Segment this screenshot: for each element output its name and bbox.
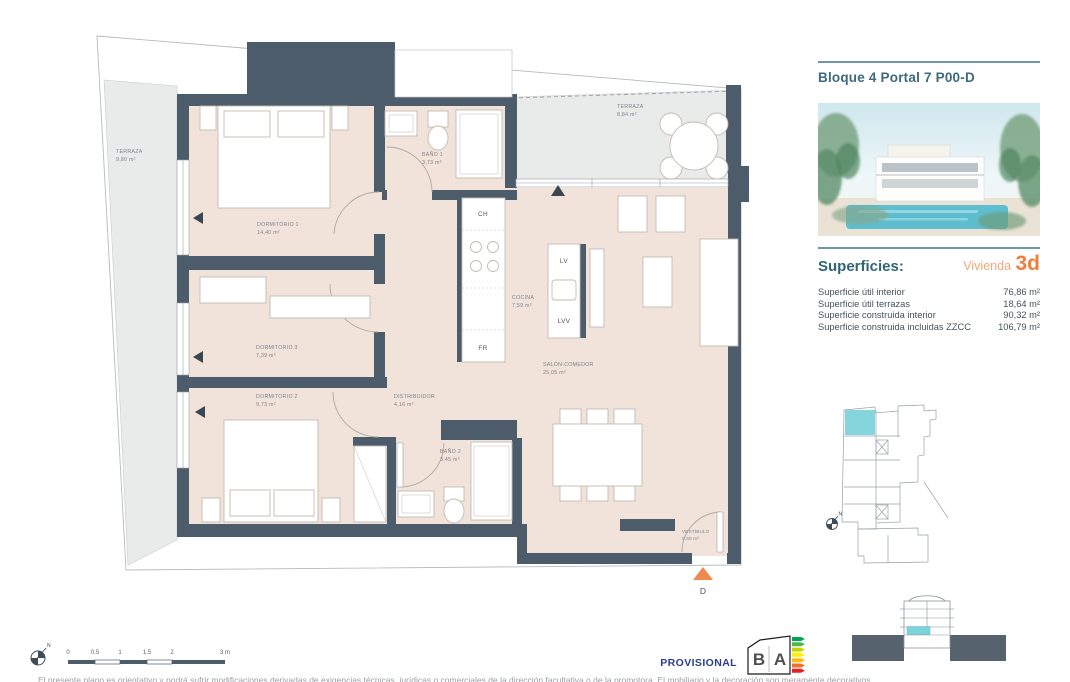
patio-shaft: [395, 50, 512, 97]
windows-west: [177, 160, 189, 468]
svg-text:9,73 m²: 9,73 m²: [256, 402, 276, 408]
svg-text:0.5: 0.5: [91, 650, 100, 656]
washer-label: LVV: [558, 318, 571, 325]
energy-rating-icon: B A: [746, 634, 808, 676]
room-distribuidor: DISTRIBUIDOR: [394, 394, 435, 400]
panel-divider-top: [818, 61, 1040, 63]
page-title: Bloque 4 Portal 7 P00-D: [818, 70, 1040, 85]
key-plan: N: [820, 392, 1025, 572]
svg-text:7,39 m²: 7,39 m²: [256, 353, 276, 359]
room-dormitorio2: DORMITORIO 2: [256, 394, 298, 400]
highlighted-floor: [907, 627, 930, 635]
svg-text:8,84 m²: 8,84 m²: [617, 112, 637, 118]
svg-text:25,05 m²: 25,05 m²: [543, 370, 566, 376]
compass-icon: N: [31, 643, 51, 665]
svg-text:B: B: [753, 650, 765, 669]
room-terraza-top: TERRAZA: [617, 104, 644, 110]
fridge-label: FR: [478, 345, 487, 352]
svg-text:A: A: [774, 650, 786, 669]
svg-text:1: 1: [118, 650, 122, 656]
svg-text:2: 2: [170, 650, 174, 656]
svg-text:3,45 m²: 3,45 m²: [440, 457, 460, 463]
room-cocina: COCINA: [512, 295, 534, 301]
svg-text:N: N: [839, 512, 843, 518]
room-bano2: BAÑO 2: [440, 448, 461, 455]
svg-text:1.5: 1.5: [143, 650, 152, 656]
terrace-sliding-window: [516, 179, 728, 187]
vivienda-label: Vivienda: [963, 259, 1011, 273]
vivienda-badge: Vivienda 3d: [963, 255, 1040, 275]
energy-scale-bars: [792, 637, 805, 673]
table-row: Superficie construida incluidas ZZCC 106…: [818, 322, 1040, 334]
room-terraza-left: TERRAZA: [116, 149, 143, 155]
svg-text:7,59 m²: 7,59 m²: [512, 303, 532, 309]
svg-text:N: N: [47, 643, 51, 649]
scale-bar: N 0 0.5 1 1.5 2 3 m: [20, 636, 260, 676]
room-salon: SALÓN-COMEDOR: [543, 361, 594, 368]
vivienda-value: 3d: [1015, 252, 1040, 275]
dishwasher-label: LV: [560, 258, 568, 265]
svg-text:14,40 m²: 14,40 m²: [257, 230, 280, 236]
scale-bar-segments: [68, 660, 225, 664]
building-render: [818, 103, 1040, 236]
building-section: [852, 593, 1032, 671]
room-dormitorio1: DORMITORIO 1: [257, 222, 299, 228]
highlighted-unit: [845, 410, 875, 435]
room-dormitorio3: DORMITORIO 3: [256, 345, 298, 351]
superficies-heading: Superficies:: [818, 258, 904, 275]
svg-text:9,80 m²: 9,80 m²: [116, 157, 136, 163]
table-row: Superficie construida interior 90,32 m²: [818, 310, 1040, 322]
svg-text:0,80 m²: 0,80 m²: [682, 536, 699, 541]
hood-label: CH: [478, 211, 488, 218]
room-bano1: BAÑO 1: [422, 151, 443, 158]
svg-text:0: 0: [66, 650, 70, 656]
table-row: Superficie útil terrazas 18,64 m²: [818, 299, 1040, 311]
panel-divider-mid: [818, 247, 1040, 249]
floor-plan: CH FR LV LVV D TERRAZA 9,80 m² TERRAZA 8…: [0, 0, 790, 682]
provisional-label: PROVISIONAL: [660, 657, 737, 669]
svg-text:3,73 m²: 3,73 m²: [422, 160, 442, 166]
superficies-table: Superficie útil interior 76,86 m² Superf…: [818, 287, 1040, 333]
svg-text:4,16 m²: 4,16 m²: [394, 402, 414, 408]
disclaimer-text: El presente plano es orientativo y podrá…: [38, 675, 1048, 682]
room-vestibulo: VESTÍBULO: [682, 528, 710, 534]
entry-marker: D: [700, 586, 706, 596]
compass-icon: N: [827, 512, 843, 530]
table-row: Superficie útil interior 76,86 m²: [818, 287, 1040, 299]
entry-arrow-icon: [693, 567, 713, 580]
svg-text:3 m: 3 m: [220, 650, 230, 656]
provisional-block: PROVISIONAL B A: [560, 630, 808, 676]
scale-bar-ticks: 0 0.5 1 1.5 2 3 m: [66, 650, 230, 656]
page: CH FR LV LVV D TERRAZA 9,80 m² TERRAZA 8…: [0, 0, 1070, 682]
